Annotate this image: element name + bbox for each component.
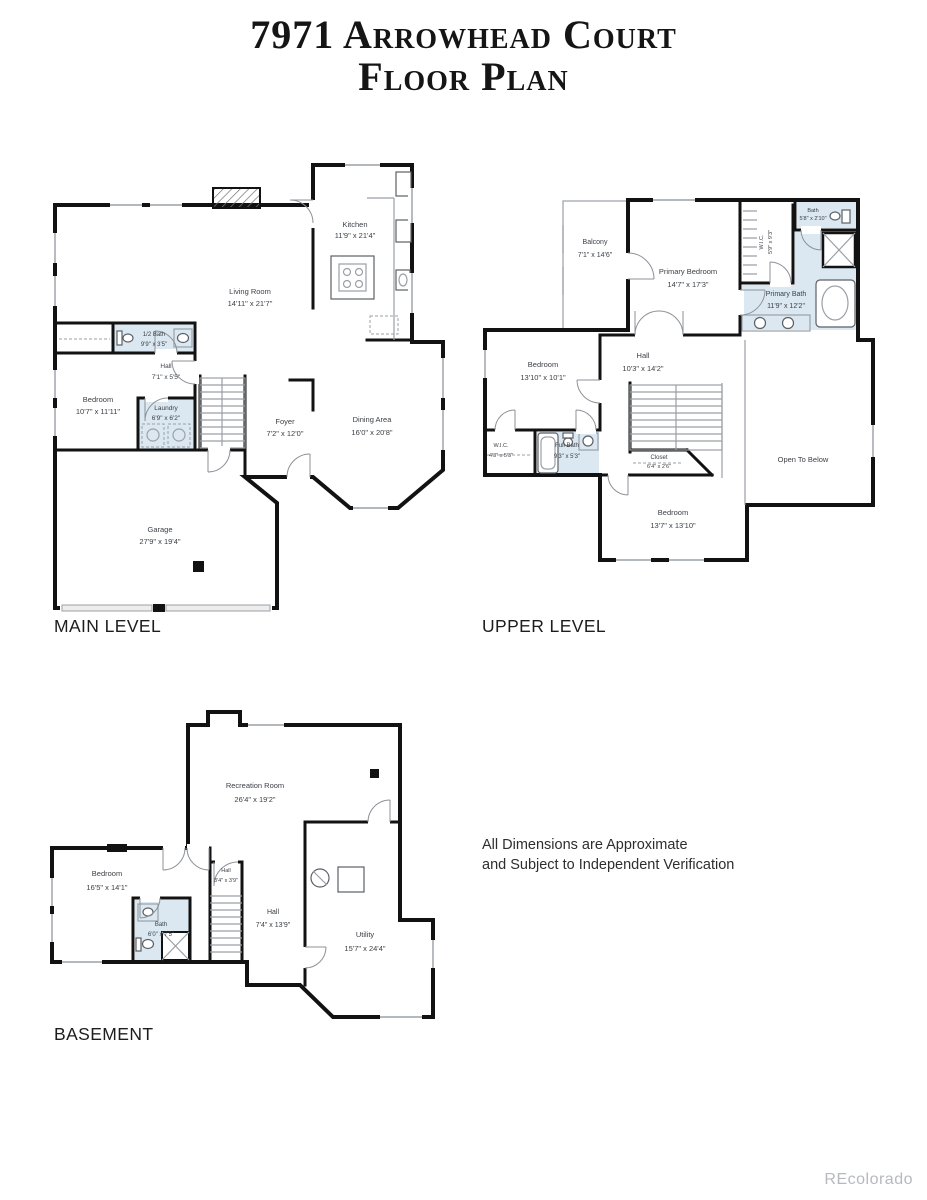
support-post (370, 769, 379, 778)
shower-icon (823, 233, 855, 267)
toilet-icon (143, 940, 154, 949)
upper-level-label: UPPER LEVEL (482, 616, 606, 637)
room-dims: 6'4" x 2'6" (647, 464, 671, 470)
room-label: Bedroom (92, 869, 122, 878)
room-dims: 6'0" x 7'5" (148, 932, 174, 938)
door-slab (107, 844, 127, 852)
garage-door (166, 605, 270, 611)
room-label: 1/2 Bath (143, 332, 165, 338)
room-label: Bedroom (658, 508, 688, 517)
walls (52, 712, 433, 1017)
room-dims: 14'7" x 17'3" (667, 280, 708, 289)
room-dims: 7'1" x 5'5" (152, 374, 181, 381)
toilet-tank (117, 331, 122, 345)
walls (55, 165, 443, 608)
room-labels: Balcony 7'1" x 14'6" Primary Bedroom 14'… (489, 208, 829, 530)
room-label: Hall (267, 909, 280, 916)
sink-icon (396, 270, 410, 290)
water-heater-icon (311, 869, 329, 887)
sink-icon (783, 318, 794, 329)
room-dims: 13'7" x 13'10" (650, 521, 696, 530)
windows (51, 161, 447, 512)
room-label: Bedroom (528, 360, 558, 369)
room-label: Hall (160, 363, 172, 370)
room-dims: 7'4" x 13'9" (256, 922, 291, 929)
toilet-tank (842, 210, 850, 223)
disclaimer-line2: and Subject to Independent Verification (482, 856, 734, 876)
utility-fixtures (311, 867, 364, 892)
room-label: W.I.C. (494, 443, 509, 449)
room-dims: 5'9" x 9'3" (768, 230, 774, 254)
basement-floor-plan: Recreation Room 26'4" x 19'2" Bedroom 16… (50, 700, 462, 1025)
room-dims: 14'11" x 21'7" (228, 299, 273, 308)
stairs-icon (200, 378, 245, 448)
room-label: Dining Area (353, 415, 393, 424)
room-dims: 5'8" x 2'10" (799, 216, 826, 222)
room-dims: 16'0" x 20'8" (351, 428, 392, 437)
balcony-railing (559, 201, 628, 329)
room-dims: 16'5" x 14'1" (86, 883, 127, 892)
room-dims: 3'4" x 3'9" (214, 878, 238, 884)
wic-shelves (743, 211, 757, 274)
room-label: Garage (147, 525, 172, 534)
room-dims: 7'1" x 14'6" (578, 252, 613, 259)
floor-plan-page: { "page": { "title_line1": "7971 Arrowhe… (0, 0, 927, 1200)
room-dims: 6'9" x 6'2" (152, 415, 181, 422)
disclaimer-line1: All Dimensions are Approximate (482, 836, 734, 856)
room-label: W.I.C. (759, 234, 765, 249)
garage-door (62, 605, 152, 611)
room-dims: 11'9" x 21'4" (335, 231, 376, 240)
sink-icon (178, 334, 189, 343)
page-title-line2: Floor Plan (0, 56, 927, 98)
page-title-line1: 7971 Arrowhead Court (0, 14, 927, 56)
room-label: Living Room (229, 287, 271, 296)
page-title: 7971 Arrowhead Court Floor Plan (0, 14, 927, 98)
room-dims: 11'9" x 12'2" (767, 303, 805, 310)
room-label: Recreation Room (226, 781, 284, 790)
main-level-floor-plan: Kitchen 11'9" x 21'4" Living Room 14'11"… (50, 158, 465, 618)
room-dims: 10'7" x 11'11" (76, 407, 121, 416)
room-dims: 9'3" x 5'3" (554, 454, 580, 460)
tub-icon (816, 280, 855, 327)
fireplace-chimney (213, 188, 260, 208)
room-label: Full Bath (555, 443, 579, 449)
support-post (193, 561, 204, 572)
kitchen-fixtures (331, 172, 411, 340)
room-label: Balcony (583, 239, 608, 246)
room-label: Primary Bath (766, 291, 807, 298)
room-label: Bedroom (83, 395, 113, 404)
room-dims: 9'9" x 3'5" (141, 342, 167, 348)
watermark: REcolorado (824, 1171, 913, 1189)
toilet-icon (830, 212, 840, 220)
room-dims: 7'2" x 12'0" (267, 429, 304, 438)
furnace-icon (338, 867, 364, 892)
room-label: Hall (637, 351, 650, 360)
stairs-icon (210, 896, 242, 952)
room-label: Laundry (154, 405, 178, 412)
garage-details (60, 561, 272, 613)
room-label: Closet (650, 455, 667, 461)
basement-label: BASEMENT (54, 1024, 153, 1045)
room-label: Foyer (275, 417, 295, 426)
room-dims: 4'3" x 5'3" (489, 453, 513, 459)
stove-icon (396, 220, 411, 242)
island-cooktop-icon (331, 256, 374, 299)
room-label: Primary Bedroom (659, 267, 717, 276)
room-label: Utility (356, 930, 375, 939)
room-dims: 27'9" x 19'4" (139, 537, 180, 546)
room-label: Bath (155, 922, 167, 928)
room-label: Hall (221, 868, 230, 874)
room-label: Kitchen (342, 220, 367, 229)
room-label: Open To Below (778, 455, 829, 464)
room-dims: 15'7" x 24'4" (344, 944, 385, 953)
disclaimer: All Dimensions are Approximate and Subje… (482, 836, 734, 875)
sink-icon (755, 318, 766, 329)
upper-level-floor-plan: Balcony 7'1" x 14'6" Primary Bedroom 14'… (483, 195, 888, 612)
toilet-tank (136, 938, 141, 951)
room-dims: 10'3" x 14'2" (622, 364, 663, 373)
room-label: Bath (807, 208, 818, 214)
main-level-label: MAIN LEVEL (54, 616, 161, 637)
room-dims: 13'10" x 10'1" (520, 373, 566, 382)
toilet-icon (123, 334, 133, 342)
room-dims: 26'4" x 19'2" (234, 795, 275, 804)
sink-icon (583, 436, 593, 446)
